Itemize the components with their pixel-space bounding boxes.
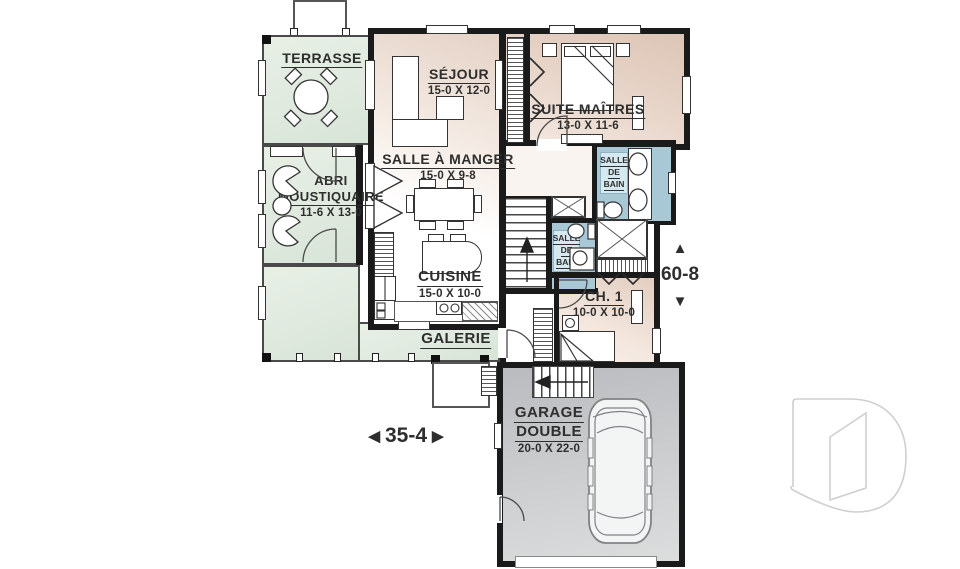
screen-window (332, 146, 356, 157)
cuisine-name: CUISINE (417, 268, 483, 287)
fridge (374, 276, 396, 301)
sofa (392, 119, 448, 147)
stool (428, 234, 444, 242)
stairs-garage (532, 366, 594, 398)
label-ch1: CH. 1 10-0 X 10-0 (573, 288, 635, 319)
bath-maitres-line3: BAIN (604, 179, 625, 191)
porch-post (262, 35, 271, 44)
porch-post (334, 353, 341, 362)
garage-dims: 20-0 X 22-0 (514, 443, 584, 455)
label-sejour: SÉJOUR 15-0 X 12-0 (428, 66, 490, 97)
sejour-dims: 15-0 X 12-0 (428, 85, 490, 97)
ottoman (436, 96, 464, 120)
ch1-dims: 10-0 X 10-0 (573, 307, 635, 319)
garage-name-2: DOUBLE (515, 423, 583, 442)
window (549, 25, 575, 34)
bath-hall-line3: BAIN (556, 257, 577, 269)
porch-post (296, 353, 303, 362)
pillow (564, 46, 586, 57)
suite-maitres-name: SUITE MAÎTRES (530, 101, 645, 119)
dimension-width-value: 35-4 (385, 424, 427, 448)
shower-maitres (596, 219, 648, 259)
salle-a-manger-dims: 15-0 X 9-8 (381, 170, 515, 182)
drummond-d-logo (791, 399, 906, 512)
cuisine-dims: 15-0 X 10-0 (417, 288, 483, 300)
galerie-name: GALERIE (420, 330, 491, 349)
foyer-closet (533, 308, 553, 362)
bath-vanity (628, 148, 652, 220)
window (607, 25, 641, 34)
shower-hall (551, 196, 586, 218)
sofa (392, 56, 419, 122)
bath-maitres-line2: DE (608, 167, 620, 179)
porch-post (372, 353, 379, 362)
bath-maitres-label-plate: SALLE DE BAIN (600, 152, 628, 194)
dimension-height-value: 60-8 (661, 264, 699, 286)
dining-table (414, 188, 474, 221)
label-garage: GARAGE DOUBLE 20-0 X 22-0 (514, 404, 584, 455)
abri-dims: 11-6 X 13-0 (277, 207, 385, 219)
garage-name-1: GARAGE (514, 404, 584, 423)
screen-window (258, 286, 266, 320)
nightstand (542, 43, 557, 57)
dimension-width: ◀ 35-4 ▶ (368, 424, 443, 448)
chair (447, 221, 464, 230)
terrace-steps (293, 0, 347, 38)
label-galerie: GALERIE (420, 330, 491, 349)
bath-window (668, 172, 676, 194)
bench (561, 134, 603, 144)
bath-hall-line1: SALLE (553, 233, 581, 245)
room-galerie-left (262, 265, 360, 362)
floor-plan: SALLE DE BAIN SALLE DE BAIN (0, 0, 960, 569)
screen-window (258, 170, 266, 204)
window (398, 321, 430, 330)
door-opening (498, 328, 508, 358)
abri-name-1: ABRI (313, 173, 348, 189)
suite-maitres-dims: 13-0 X 11-6 (530, 120, 645, 132)
bath-maitres-line1: SALLE (600, 155, 628, 167)
porch-post (408, 353, 415, 362)
arrow-right-icon: ▶ (432, 427, 444, 445)
bath-hall-line2: DE (561, 245, 573, 257)
window (494, 423, 502, 449)
kitchen-sink (374, 300, 396, 320)
arrow-down-icon: ▼ (673, 293, 688, 310)
arrow-left-icon: ◀ (368, 427, 380, 445)
chair (406, 195, 414, 213)
window (365, 60, 375, 110)
window (426, 25, 468, 34)
chair (474, 195, 482, 213)
nightstand (616, 43, 630, 57)
porch-post (262, 353, 271, 362)
screen-window (258, 214, 266, 248)
tv-unit (495, 60, 503, 110)
dimension-height: ▲ 60-8 ▼ (658, 240, 702, 310)
arrow-up-icon: ▲ (673, 240, 688, 257)
kitchen-counter-corner (462, 302, 498, 321)
pillow (590, 46, 611, 57)
bed-ch1 (559, 331, 615, 362)
window (682, 76, 691, 114)
abri-name-2: MOUSTIQUAIRE (277, 189, 385, 206)
ch1-name: CH. 1 (584, 288, 624, 306)
stool (450, 234, 466, 242)
garage-closet (481, 366, 497, 396)
chair (419, 221, 436, 230)
bath-hall-label-plate: SALLE DE BAIN (553, 230, 580, 272)
ch1-wall (552, 272, 660, 278)
terrasse-name: TERRASSE (281, 50, 362, 68)
label-cuisine: CUISINE 15-0 X 10-0 (417, 268, 483, 300)
salle-a-manger-name: SALLE À MANGER (381, 151, 515, 169)
window (652, 328, 661, 354)
door-opening (494, 495, 502, 523)
label-suite-maitres: SUITE MAÎTRES 13-0 X 11-6 (530, 101, 645, 132)
closet-wall (524, 34, 530, 146)
label-abri: ABRI MOUSTIQUAIRE 11-6 X 13-0 (277, 173, 385, 219)
screen-window (270, 146, 303, 157)
master-closet (507, 37, 524, 143)
garage-door-opening (515, 556, 657, 568)
stairs-main (506, 196, 546, 290)
cooktop (436, 301, 462, 315)
label-terrasse: TERRASSE (281, 50, 362, 68)
label-salle-a-manger: SALLE À MANGER 15-0 X 9-8 (381, 151, 515, 182)
sejour-name: SÉJOUR (428, 66, 490, 84)
screen-window (258, 60, 266, 96)
